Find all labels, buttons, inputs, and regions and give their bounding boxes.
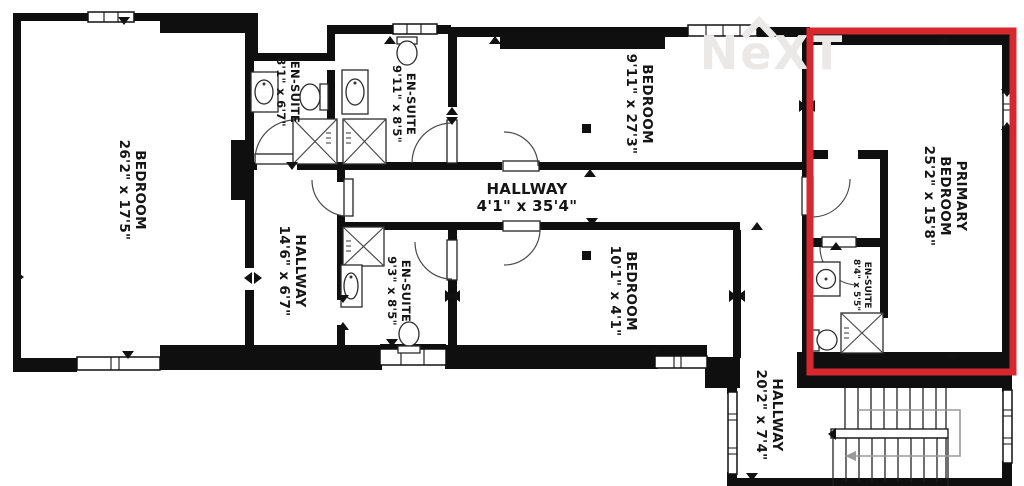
svg-text:26'2" x 17'5": 26'2" x 17'5" bbox=[116, 140, 132, 241]
svg-text:BEDROOM: BEDROOM bbox=[132, 150, 148, 230]
room-label-en-suite-mid: EN-SUITE 9'3" x 8'5" bbox=[385, 256, 413, 326]
room-label-primary-bedroom: PRIMARY BEDROOM 25'2" x 15'8" bbox=[921, 146, 969, 247]
room-label-en-suite-top-left: EN-SUITE 8'1" x 6'7" bbox=[274, 57, 302, 127]
room-label-hallway-left: HALLWAY 14'6" x 6'7" bbox=[276, 225, 308, 316]
room-label-hallway-bottom: HALLWAY 20'2" x 7'4" bbox=[753, 369, 785, 460]
door-bedroom-top bbox=[503, 132, 539, 171]
measurement-arrows bbox=[16, 17, 1013, 481]
staircase bbox=[831, 388, 960, 486]
svg-text:9'11" x 8'5": 9'11" x 8'5" bbox=[390, 65, 404, 143]
walls bbox=[13, 13, 1012, 486]
toilet-fixture bbox=[398, 322, 420, 353]
column bbox=[582, 251, 591, 260]
sink-fixture bbox=[251, 72, 278, 112]
window bbox=[393, 24, 437, 34]
svg-text:20'2" x 7'4": 20'2" x 7'4" bbox=[753, 369, 769, 460]
svg-text:BEDROOM: BEDROOM bbox=[639, 64, 655, 144]
svg-text:BEDROOM: BEDROOM bbox=[937, 156, 953, 236]
svg-text:HALLWAY: HALLWAY bbox=[769, 378, 785, 451]
svg-text:25'2" x 15'8": 25'2" x 15'8" bbox=[921, 146, 937, 247]
svg-text:9'3" x 8'5": 9'3" x 8'5" bbox=[385, 256, 399, 326]
svg-text:EN-SUITE: EN-SUITE bbox=[404, 73, 418, 135]
door-hallway-left bbox=[312, 179, 353, 216]
svg-text:EN-SUITE: EN-SUITE bbox=[862, 262, 872, 309]
stair-rail bbox=[831, 429, 948, 438]
room-label-en-suite-top-mid: EN-SUITE 9'11" x 8'5" bbox=[390, 65, 418, 143]
svg-text:9'11" x 27'3": 9'11" x 27'3" bbox=[623, 54, 639, 155]
svg-text:EN-SUITE: EN-SUITE bbox=[288, 61, 302, 123]
room-label-bedroom-left: BEDROOM 26'2" x 17'5" bbox=[116, 140, 148, 241]
toilet-fixture bbox=[300, 84, 328, 110]
window bbox=[655, 356, 707, 368]
svg-text:14'6" x 6'7": 14'6" x 6'7" bbox=[276, 225, 292, 316]
svg-text:BEDROOM: BEDROOM bbox=[623, 251, 639, 331]
window bbox=[77, 357, 160, 370]
toilet-fixture bbox=[812, 330, 837, 351]
svg-text:8'1" x 6'7": 8'1" x 6'7" bbox=[274, 57, 288, 127]
room-label-hallway-main: HALLWAY 4'1" x 35'4" bbox=[477, 180, 578, 215]
floorplan-canvas: NeXT BEDROOM 26'2" x 17'5" EN-SUITE 8'1"… bbox=[0, 0, 1024, 486]
svg-text:4'1" x 35'4": 4'1" x 35'4" bbox=[477, 197, 578, 215]
svg-text:HALLWAY: HALLWAY bbox=[292, 234, 308, 307]
window bbox=[1003, 390, 1012, 463]
column bbox=[582, 124, 591, 133]
shower-fixture bbox=[343, 227, 384, 266]
svg-text:10'1" x 4'1": 10'1" x 4'1" bbox=[607, 245, 623, 336]
sink-fixture bbox=[342, 70, 368, 114]
svg-text:PRIMARY: PRIMARY bbox=[953, 161, 969, 232]
room-label-en-suite-primary: EN-SUITE 8'4" x 5'5" bbox=[851, 259, 872, 311]
sink-fixture bbox=[812, 262, 840, 296]
shower-fixture bbox=[343, 119, 386, 164]
door-ensuite-mid bbox=[415, 240, 457, 280]
svg-text:EN-SUITE: EN-SUITE bbox=[399, 260, 413, 322]
door-bedroom-mid bbox=[503, 221, 540, 265]
room-label-bedroom-top: BEDROOM 9'11" x 27'3" bbox=[623, 54, 655, 155]
svg-text:8'4" x 5'5": 8'4" x 5'5" bbox=[851, 259, 861, 311]
floorplan-page: NeXT BEDROOM 26'2" x 17'5" EN-SUITE 8'1"… bbox=[0, 0, 1024, 486]
shower-fixture bbox=[293, 119, 337, 164]
window bbox=[728, 392, 737, 474]
toilet-fixture bbox=[397, 37, 417, 65]
svg-text:HALLWAY: HALLWAY bbox=[486, 180, 568, 198]
room-label-bedroom-mid: BEDROOM 10'1" x 4'1" bbox=[607, 245, 639, 336]
shower-fixture bbox=[841, 313, 883, 353]
room-labels: BEDROOM 26'2" x 17'5" EN-SUITE 8'1" x 6'… bbox=[116, 54, 969, 461]
